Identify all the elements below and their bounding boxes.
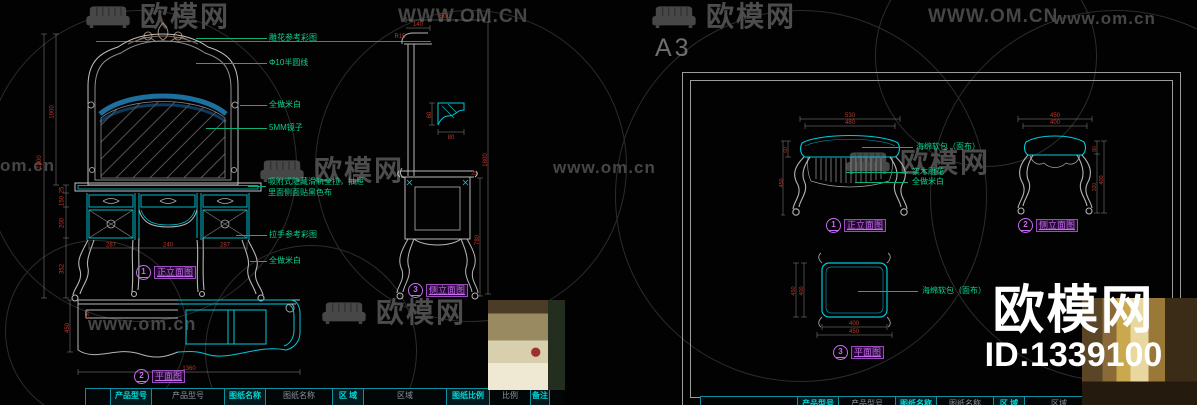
view-number-bubble: 1 [826,218,841,233]
annotation-text: Φ10半圆线 [269,58,308,68]
dim-text: 450 [65,322,71,333]
title-cell-header: 备注 [531,389,550,405]
dim-text: 352 [60,263,66,274]
annotation-text: 5MM镜子 [269,123,303,133]
view-label-stool-front: 1 正立面图 [826,218,886,233]
mirror-side-profile [400,33,432,178]
dim-text: 80 [1092,146,1098,152]
dim-text: 287 [220,243,231,249]
dim-text: 780 [475,234,481,245]
brand-watermark-text: 欧模网 [706,2,796,32]
dim-text: 1800 [37,155,43,169]
dim-text: 1000 [50,105,56,119]
dim-text: 150 [60,195,66,206]
dim-text: 450 [849,329,860,335]
leader-line [196,63,267,64]
brand-watermark: 欧模网 [648,2,796,32]
view-title: 平面图 [851,346,884,359]
dim-text: 450 [1050,113,1061,119]
view-label-front-elevation: 1 正立面图 [136,265,196,280]
dim-text: 80 [448,135,455,141]
stool-side-apron [1030,155,1080,168]
dim-text: R15 [394,34,406,40]
dim-text: 1800 [483,153,489,167]
site-id-overlay: 欧模网 ID:1339100 [950,286,1197,374]
dim-text: 25 [60,186,66,193]
dim-text: 400 [799,286,805,295]
title-cell-value: 比例 [490,389,531,405]
title-cell-empty [701,397,798,405]
dim-text: 400 [1050,120,1061,126]
title-cell-header: 区 域 [333,389,364,405]
title-cell-header: 图纸名称 [896,397,937,405]
site-overlay-id: ID:1339100 [950,336,1197,374]
view-label-stool-plan: 3 平面图 [833,345,884,360]
dim-text: 25 [471,171,477,177]
stool-side-elevation: 450 400 80 320 400 [1000,105,1112,235]
dim-text: 240 [163,243,174,249]
plan-left-half [78,300,300,357]
title-cell-value: 产品型号 [152,389,225,405]
dim-text: 400 [1099,175,1105,184]
stool-plan-dimension-lines [793,263,892,338]
table-side [397,171,478,299]
annotation-text: 全做米白 [269,100,301,110]
title-cell-empty [86,389,111,405]
stool-dimension-lines [781,116,900,215]
dim-text: 480 [845,120,856,126]
leader-line [240,105,267,106]
title-cell-value: 区域 [364,389,447,405]
dim-text: 200 [60,217,66,228]
dim-text: 140 [413,22,424,28]
stool-side-legs [1018,155,1092,214]
plan-dimension-lines [67,300,300,375]
view-number-bubble: 2 [1018,218,1033,233]
moulding-profile-detail [438,103,464,125]
leader-line [236,235,267,236]
cad-screenshot: 欧模网 欧模网 欧模网 欧模网 欧模网 WWW.OM.CN WWW.OM.CN … [0,0,1197,405]
view-number: 1 [829,221,837,231]
side-dimension-lines [406,17,491,296]
annotation-text: 吸附式隐藏滑轨全拉，抽屉 [268,177,364,187]
plan-right-half [178,300,300,356]
stool-plan-cushion-inner [826,267,883,313]
view-label-plan: 2 平面图 [134,369,185,384]
view-title: 侧立面图 [1036,219,1078,232]
reference-photo-bedroom [488,300,565,390]
view-number-bubble: 2 [134,369,149,384]
dim-text: 530 [845,113,856,119]
annotation-text: 全做米白 [269,256,301,266]
stool-plan-corner-scrolls [819,253,891,327]
dim-text: 150 [85,311,91,320]
view-title: 正立面图 [154,266,196,279]
site-watermark-text: WWW.OM.CN [928,6,1058,28]
dim-text: 60 [427,111,433,118]
stool-front-legs [793,157,907,215]
stool-plan-cushion [822,263,887,317]
view-title: 侧立面图 [426,284,468,297]
leader-line [862,147,913,148]
dim-text: 450 [779,178,785,187]
leader-line [196,38,267,39]
title-cell-header: 图纸比例 [447,389,490,405]
site-watermark-text: www.om.cn [1053,9,1156,29]
site-watermark-text: www.om.cn [553,158,656,178]
view-number: 2 [1021,221,1029,231]
title-cell-value: 产品型号 [839,397,896,405]
view-title: 平面图 [152,370,185,383]
title-cell-header: 图纸名称 [225,389,266,405]
title-cell-header: 产品型号 [111,389,152,405]
stool-side-cushion [1025,136,1086,155]
site-overlay-brand: 欧模网 [950,286,1197,336]
leader-line [846,172,908,173]
dim-text: 60 [783,147,789,153]
leader-line [250,261,267,262]
mirror-glass [101,102,225,179]
sheet-size-label: A3 [655,34,692,63]
annotation-text: 雕花参考彩图 [269,33,317,43]
leader-line [248,186,266,187]
view-number: 3 [836,348,844,358]
title-cell-header: 产品型号 [798,397,839,405]
view-label-stool-side: 2 侧立面图 [1018,218,1078,233]
title-cell-empty [550,389,564,405]
title-cell-header: 区 域 [994,397,1025,405]
dim-text: 400 [849,321,860,327]
stool-dimension-lines [1018,116,1107,213]
leader-line [855,182,908,183]
title-block-left: 产品型号 产品型号 图纸名称 图纸名称 区 域 区域 图纸比例 比例 备注 [85,388,564,405]
view-number-bubble: 1 [136,265,151,280]
leader-line [206,128,267,129]
side-elevation-drawing: 500 140 R15 1800 780 80 60 25 [388,8,504,304]
title-cell-value: 图纸名称 [937,397,994,405]
sofa-watermark-icon [318,298,370,324]
stool-front-elevation: 530 480 60 450 [780,105,920,235]
view-number-bubble: 3 [408,283,423,298]
view-number: 3 [411,286,419,296]
annotation-text: 海绵软包（面布） [916,142,980,152]
view-title: 正立面图 [844,219,886,232]
dim-text: 287 [106,243,117,249]
view-label-side-elevation: 3 侧立面图 [408,283,468,298]
view-number: 2 [137,372,145,382]
title-cell-value: 图纸名称 [266,389,333,405]
view-number-bubble: 3 [833,345,848,360]
drawer-handles [103,199,233,229]
view-number: 1 [139,268,147,278]
dim-text: 500 [440,14,451,20]
annotation-text: 拉手参考彩图 [269,230,317,240]
annotation-text: 里面侧面贴黑色布 [268,188,332,198]
dim-text: 450 [791,286,797,295]
annotation-text: 全做米白 [912,177,944,187]
annotation-text: 实木雕花 [912,167,944,177]
sofa-watermark-icon [648,2,700,28]
dim-text: 320 [1092,183,1098,192]
leader-line [858,291,918,292]
